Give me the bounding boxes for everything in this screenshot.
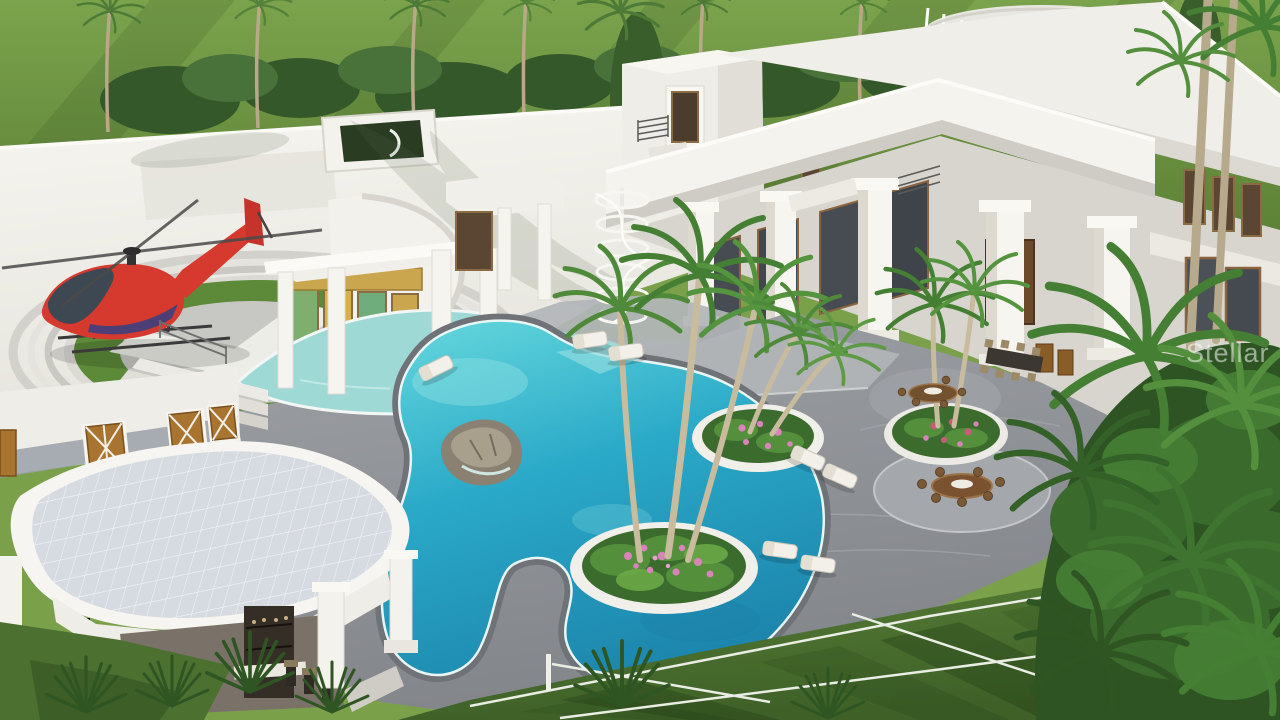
corner-window xyxy=(1058,350,1073,375)
property-rendering: Stellar MLS xyxy=(0,0,1280,720)
rooftop-door xyxy=(672,92,698,142)
watermark: Stellar MLS xyxy=(1186,338,1280,368)
net-post xyxy=(546,654,551,690)
planter-island-a xyxy=(570,522,758,614)
pavilion-doors xyxy=(456,212,492,270)
rendering-canvas: Stellar MLS xyxy=(0,0,1280,720)
